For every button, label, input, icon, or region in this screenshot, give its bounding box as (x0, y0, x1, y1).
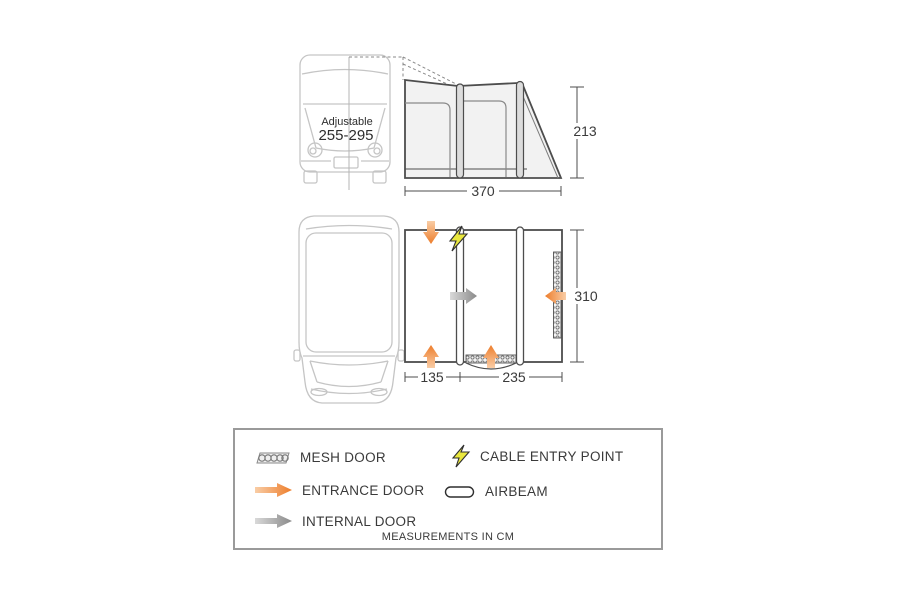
entrance-door-icon (255, 482, 293, 498)
airbeam-pole (517, 82, 524, 179)
product-diagram-page: Adjustable 255-295 370 (0, 0, 900, 600)
dimension-height: 213 (566, 87, 604, 178)
dimension-sections: 135 235 (405, 369, 562, 385)
cable-entry-point-icon (451, 444, 471, 468)
legend-item-internal-door: INTERNAL DOOR (255, 513, 416, 529)
legend-label-internal-door: INTERNAL DOOR (302, 514, 416, 529)
awning-side-elevation (405, 80, 561, 178)
measurements-note: MEASUREMENTS IN CM (235, 531, 661, 543)
side-view: Adjustable 255-295 370 (300, 55, 604, 199)
legend-item-entrance-door: ENTRANCE DOOR (255, 482, 424, 498)
awning-floor-plan (405, 221, 566, 369)
legend-item-airbeam: AIRBEAM (444, 484, 548, 499)
height-dim-value: 213 (573, 123, 597, 139)
depth-dim-value: 310 (574, 288, 598, 304)
van-top-view (294, 216, 404, 403)
legend-label-entrance-door: ENTRANCE DOOR (302, 483, 424, 498)
legend-box: MESH DOOR CABLE ENTRY POINT ENTRANCE DOO… (233, 428, 663, 550)
airbeam-pole (517, 227, 524, 365)
dimension-depth: 310 (566, 230, 606, 362)
legend-item-cable-entry: CABLE ENTRY POINT (451, 444, 623, 468)
legend-item-mesh-door: MESH DOOR (255, 450, 386, 465)
awning-body (405, 80, 561, 178)
legend-label-mesh-door: MESH DOOR (300, 450, 386, 465)
legend-label-airbeam: AIRBEAM (485, 484, 548, 499)
plan-view: 310 135 235 (294, 216, 606, 403)
floor-plan-outline (405, 230, 562, 362)
van-height-range: 255-295 (318, 127, 373, 144)
length-dim-value: 370 (471, 183, 495, 199)
front-section-dim-value: 135 (420, 369, 444, 385)
internal-door-icon (255, 513, 293, 529)
legend-label-cable-entry: CABLE ENTRY POINT (480, 449, 623, 464)
main-section-dim-value: 235 (502, 369, 526, 385)
dimension-length: 370 (405, 183, 561, 199)
mesh-door-icon (255, 451, 291, 465)
airbeam-icon (444, 485, 476, 499)
airbeam-pole (457, 84, 464, 178)
